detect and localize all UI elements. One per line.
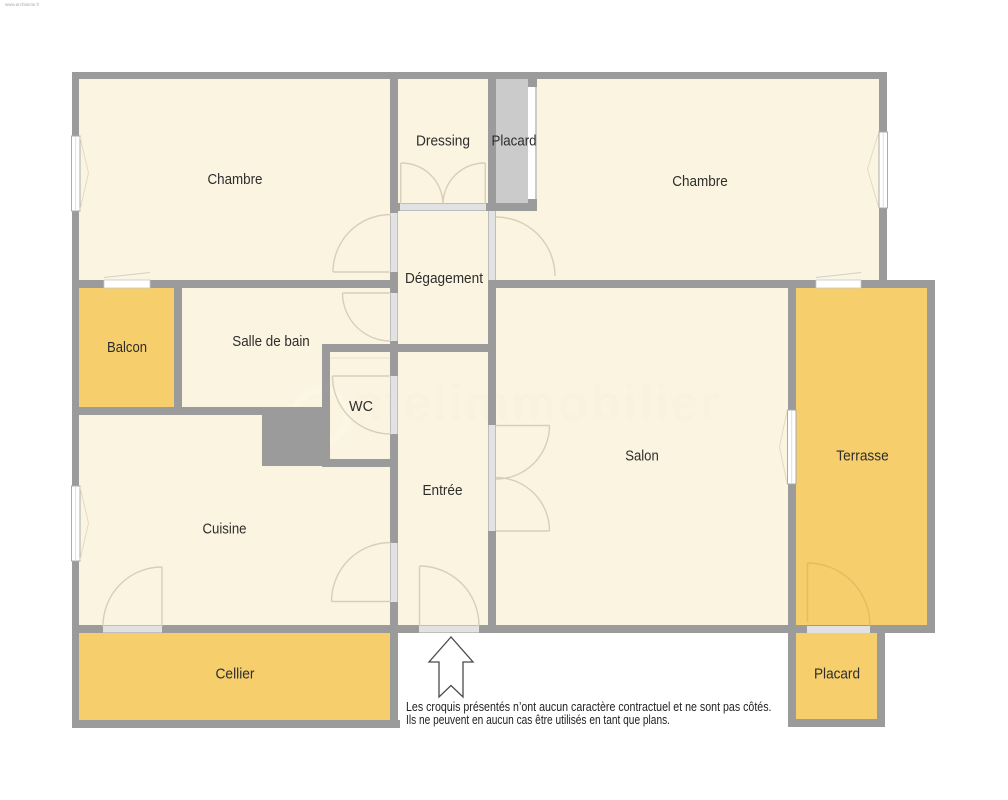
- svg-text:Dressing: Dressing: [416, 133, 470, 150]
- svg-text:Placard: Placard: [492, 133, 537, 150]
- svg-text:ntelimmobilier: ntelimmobilier: [352, 375, 722, 431]
- svg-text:Ils ne peuvent en aucun cas êt: Ils ne peuvent en aucun cas être utilisé…: [406, 712, 670, 727]
- svg-text:Cuisine: Cuisine: [203, 521, 247, 538]
- svg-text:Dégagement: Dégagement: [405, 270, 484, 287]
- svg-text:www.architecte.fr: www.architecte.fr: [5, 2, 40, 7]
- svg-text:Balcon: Balcon: [107, 339, 147, 356]
- svg-text:Salle de bain: Salle de bain: [232, 333, 310, 350]
- svg-text:Chambre: Chambre: [208, 171, 263, 188]
- svg-text:Entrée: Entrée: [423, 482, 463, 499]
- svg-text:Cellier: Cellier: [216, 666, 255, 683]
- svg-text:Salon: Salon: [625, 448, 659, 465]
- svg-text:WC: WC: [349, 398, 373, 415]
- svg-text:Placard: Placard: [814, 666, 860, 683]
- svg-text:Terrasse: Terrasse: [836, 448, 889, 465]
- svg-text:Chambre: Chambre: [672, 173, 728, 190]
